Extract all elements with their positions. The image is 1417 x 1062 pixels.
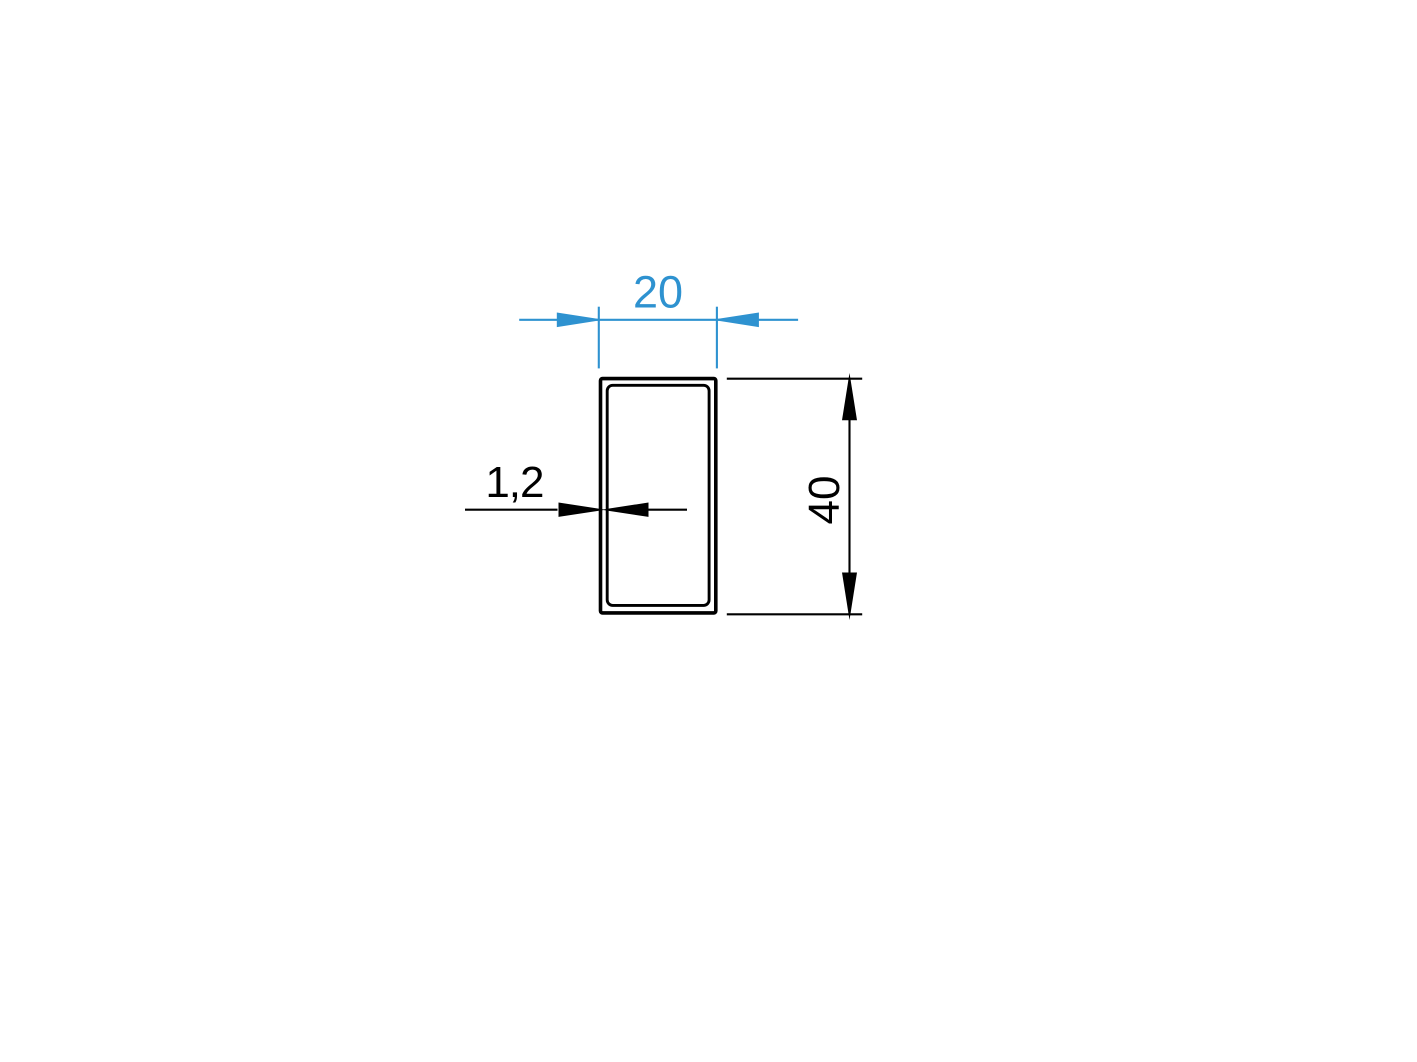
- svg-text:40: 40: [800, 476, 849, 525]
- svg-text:1,2: 1,2: [485, 458, 543, 507]
- svg-text:20: 20: [633, 267, 683, 318]
